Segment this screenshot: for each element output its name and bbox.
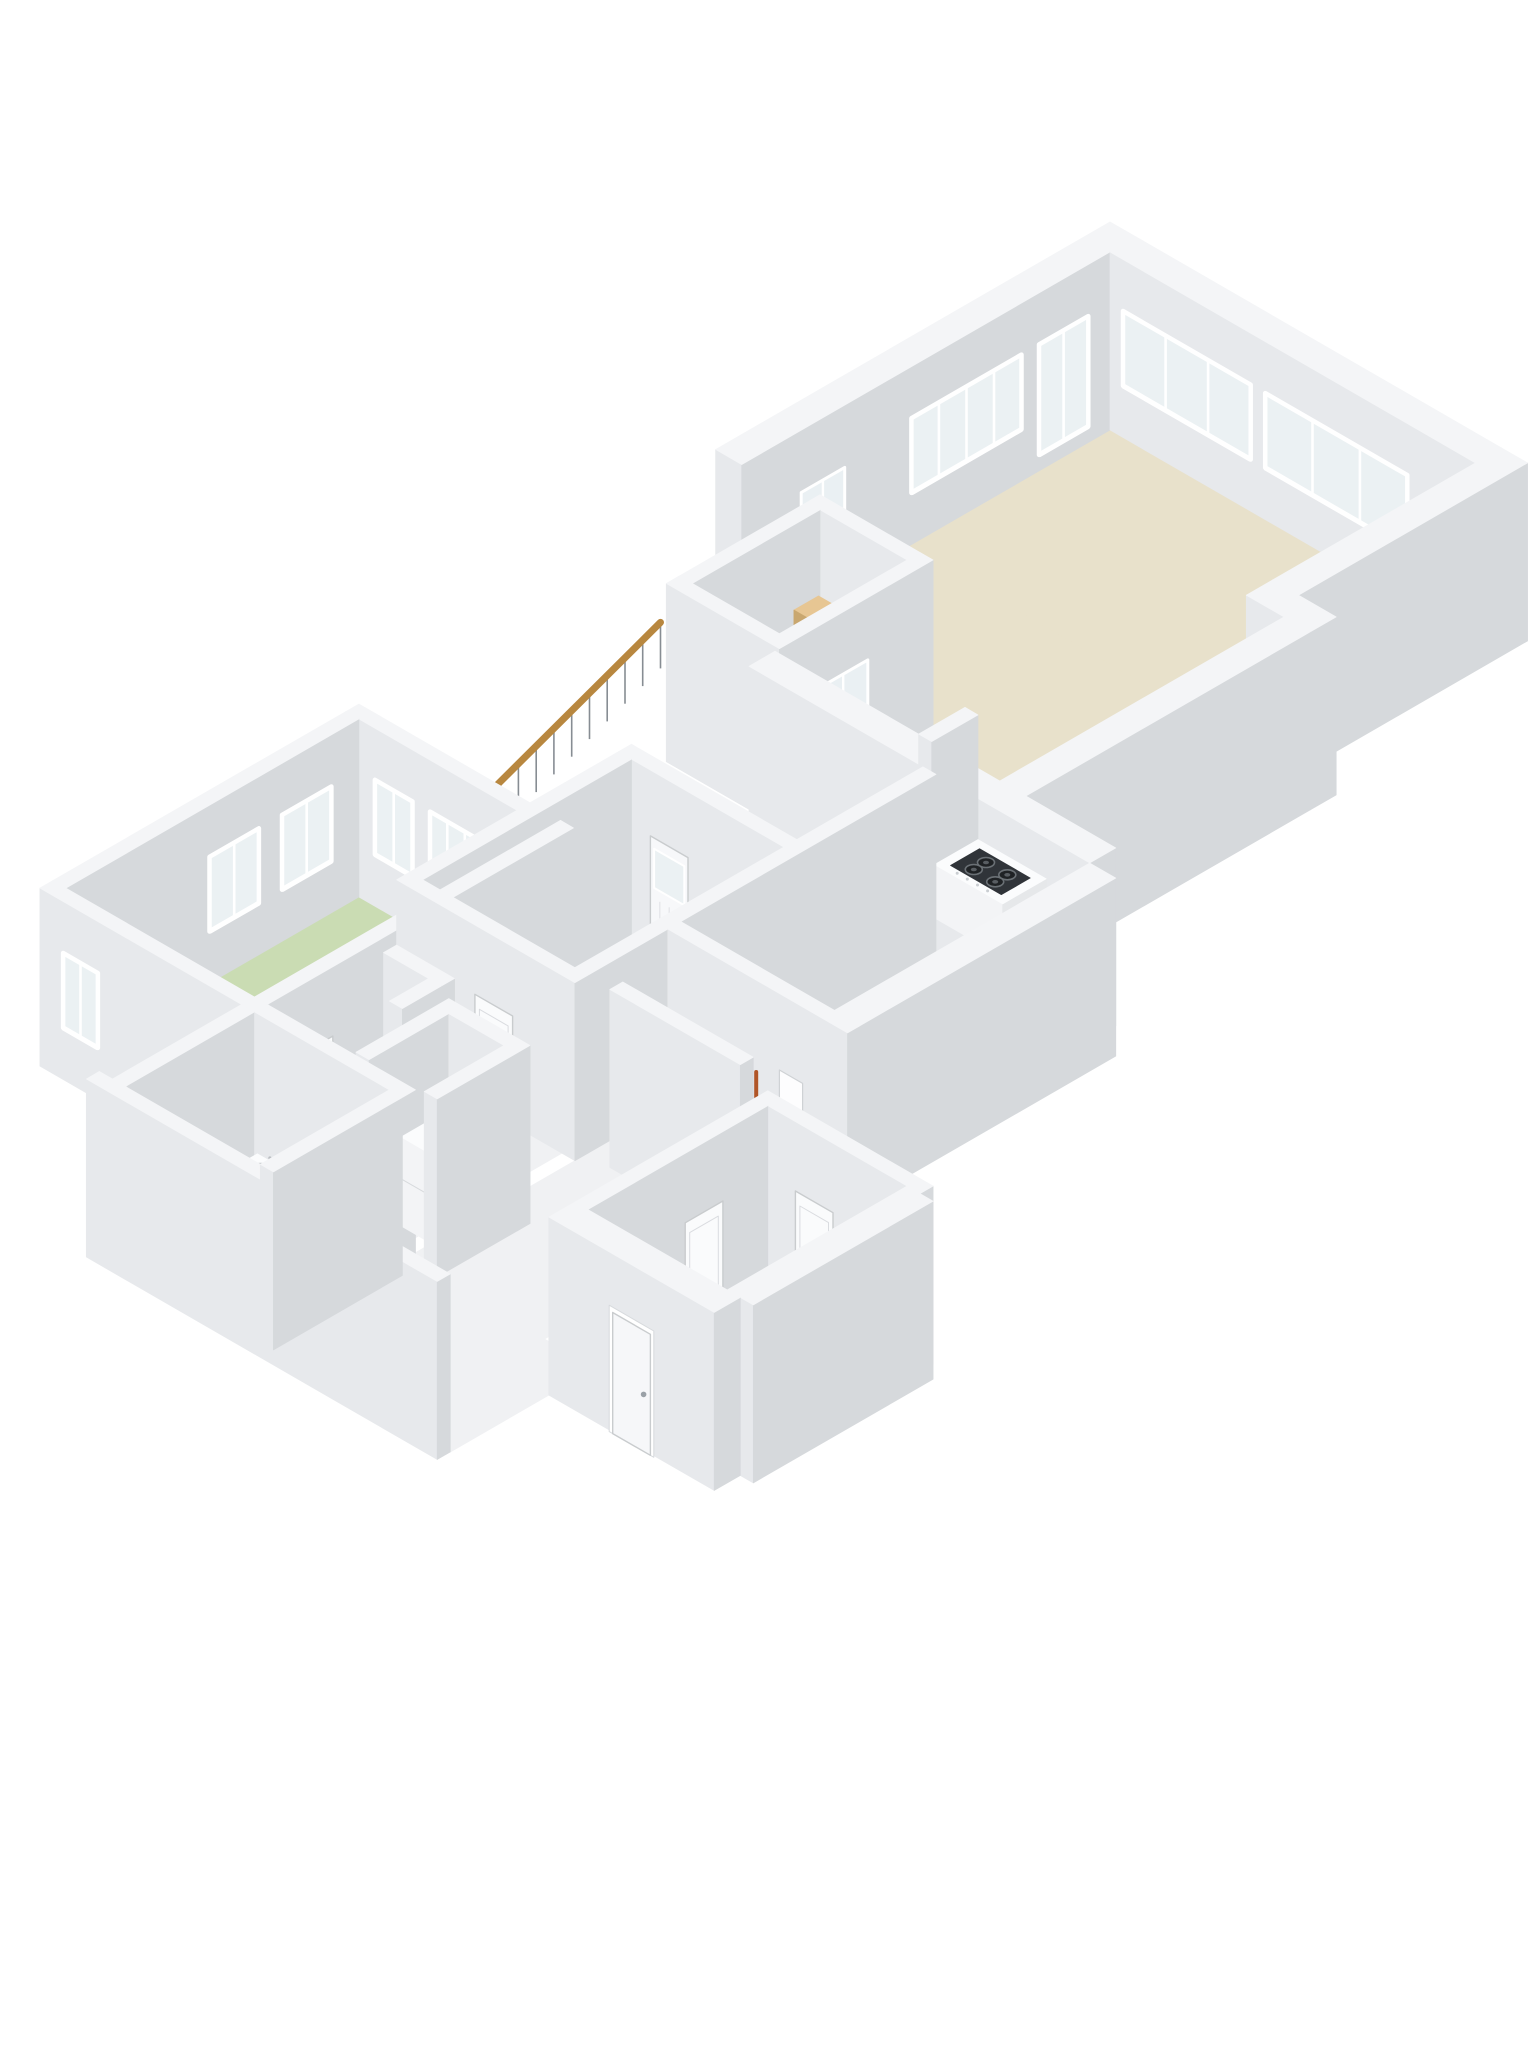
floorplan-stage bbox=[0, 0, 1536, 2048]
floorplan-3d-render bbox=[0, 0, 1536, 2048]
